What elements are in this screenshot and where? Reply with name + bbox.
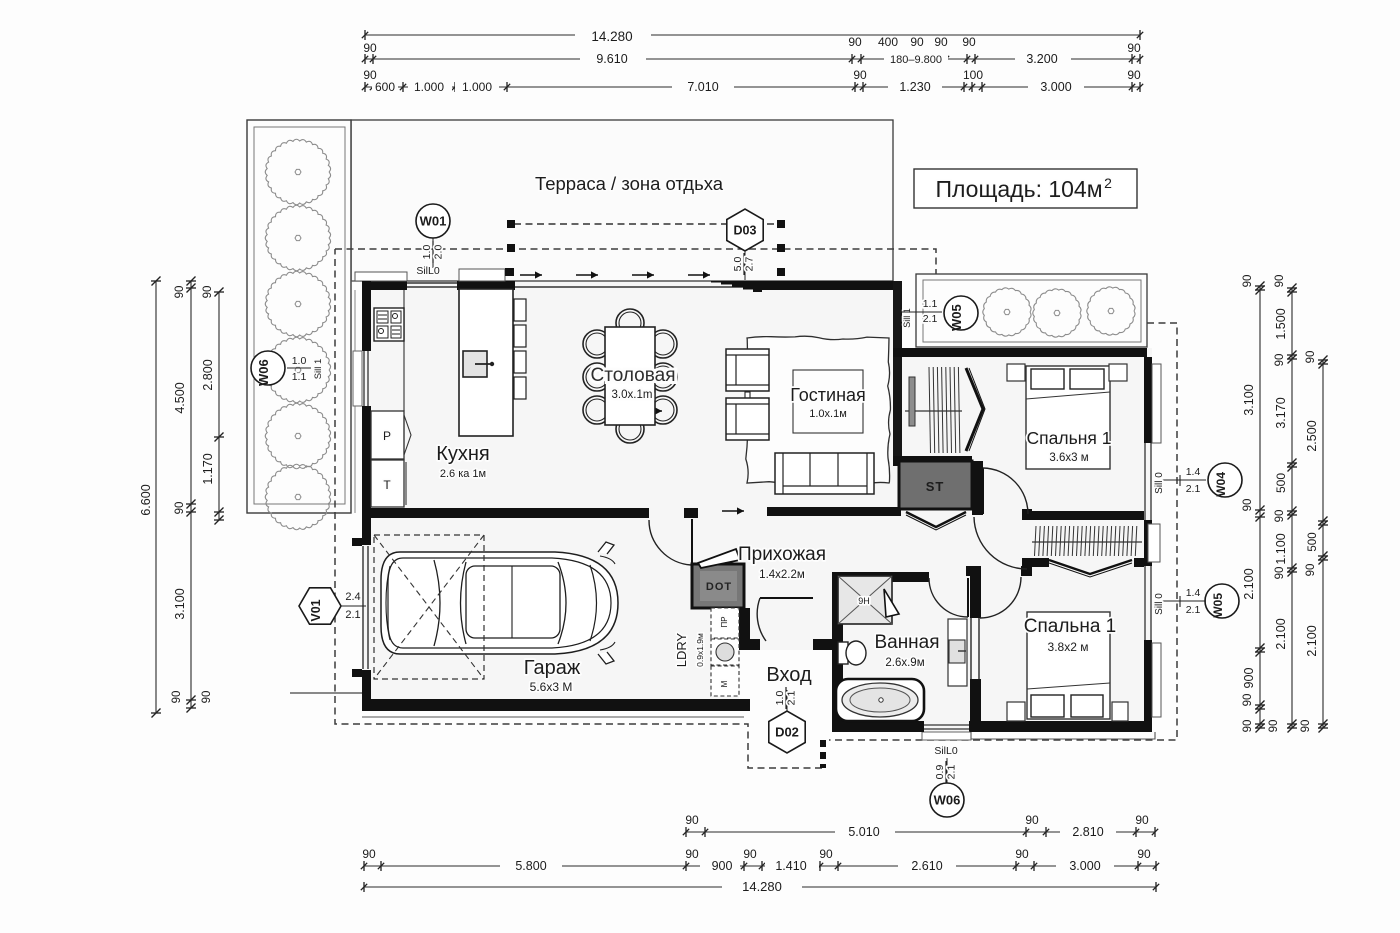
svg-text:Sill 1: Sill 1: [902, 308, 912, 328]
svg-text:1.4: 1.4: [1186, 587, 1201, 599]
svg-text:1.100: 1.100: [1274, 533, 1288, 564]
svg-text:3.100: 3.100: [173, 588, 187, 619]
svg-text:2.7: 2.7: [744, 257, 756, 272]
svg-text:Прихожая: Прихожая: [738, 544, 826, 565]
svg-text:Ванная: Ванная: [874, 632, 939, 653]
svg-text:2.610: 2.610: [911, 859, 942, 873]
svg-text:ПР: ПР: [720, 616, 729, 627]
svg-text:90: 90: [201, 691, 213, 704]
svg-text:900: 900: [712, 859, 733, 873]
svg-text:2.100: 2.100: [1242, 568, 1256, 599]
svg-text:T: T: [383, 478, 391, 492]
svg-text:1.0: 1.0: [774, 691, 786, 706]
svg-text:2.6 ка 1м: 2.6 ка 1м: [440, 468, 486, 480]
svg-text:1.0: 1.0: [292, 355, 307, 367]
svg-text:100: 100: [963, 68, 983, 82]
svg-text:90: 90: [363, 41, 377, 55]
svg-text:5.6х3 М: 5.6х3 М: [530, 680, 573, 694]
svg-text:0.9: 0.9: [934, 765, 946, 780]
svg-text:2: 2: [1104, 175, 1112, 191]
svg-text:7.010: 7.010: [687, 80, 718, 94]
svg-text:Sill 0: Sill 0: [1154, 472, 1165, 494]
svg-text:90: 90: [934, 35, 948, 49]
svg-text:Гостиная: Гостиная: [790, 385, 866, 405]
svg-text:2.1: 2.1: [946, 765, 958, 780]
svg-text:2.1: 2.1: [345, 609, 360, 621]
svg-text:500: 500: [1307, 532, 1319, 551]
svg-text:2.4: 2.4: [345, 591, 360, 603]
svg-text:90: 90: [1015, 847, 1029, 861]
svg-text:3.000: 3.000: [1069, 859, 1100, 873]
svg-text:5.800: 5.800: [515, 859, 546, 873]
svg-text:14.280: 14.280: [591, 29, 632, 44]
svg-text:Терраса / зона отдьха: Терраса / зона отдьха: [535, 173, 724, 194]
svg-text:1.1: 1.1: [923, 298, 938, 310]
svg-text:Sill 0: Sill 0: [1154, 593, 1165, 615]
svg-text:DOT: DOT: [706, 581, 732, 593]
svg-text:90: 90: [1305, 564, 1317, 577]
svg-text:0.9х1.9м: 0.9х1.9м: [695, 633, 705, 667]
svg-text:90: 90: [202, 286, 214, 299]
svg-text:2.100: 2.100: [1305, 625, 1319, 656]
svg-text:3.6х3 м: 3.6х3 м: [1049, 452, 1088, 464]
svg-text:400: 400: [878, 35, 898, 49]
svg-text:90: 90: [1242, 499, 1254, 512]
svg-text:90: 90: [1135, 813, 1149, 827]
svg-text:90: 90: [1274, 510, 1286, 523]
svg-text:ST: ST: [926, 479, 945, 494]
svg-text:9H: 9H: [858, 596, 870, 606]
svg-text:5.0: 5.0: [732, 257, 744, 272]
svg-text:W05: W05: [949, 304, 964, 331]
svg-text:2.100: 2.100: [1274, 618, 1288, 649]
svg-text:90: 90: [171, 691, 183, 704]
svg-text:1.0: 1.0: [421, 245, 433, 260]
svg-text:90: 90: [1127, 68, 1141, 82]
svg-text:D03: D03: [734, 224, 757, 238]
svg-text:3.0х.1m: 3.0х.1m: [612, 389, 653, 401]
svg-text:90: 90: [685, 847, 699, 861]
svg-text:4.500: 4.500: [173, 382, 187, 413]
svg-text:1.000: 1.000: [414, 80, 444, 94]
svg-text:90: 90: [853, 68, 867, 82]
svg-text:90: 90: [910, 35, 924, 49]
svg-text:90: 90: [174, 286, 186, 299]
svg-text:90: 90: [1300, 720, 1312, 733]
svg-text:Площадь: 104м: Площадь: 104м: [935, 176, 1102, 202]
svg-text:3.000: 3.000: [1040, 80, 1071, 94]
svg-text:3.170: 3.170: [1274, 397, 1288, 428]
svg-text:Спальня 1: Спальня 1: [1027, 428, 1112, 448]
svg-text:90: 90: [1242, 720, 1254, 733]
svg-text:3.100: 3.100: [1242, 384, 1256, 415]
svg-text:W01: W01: [420, 214, 447, 229]
svg-text:2.0: 2.0: [433, 245, 445, 260]
svg-text:5.010: 5.010: [848, 825, 879, 839]
svg-text:1.0х.1м: 1.0х.1м: [809, 408, 847, 420]
svg-text:W06: W06: [934, 793, 961, 808]
svg-text:Спальна 1: Спальна 1: [1024, 616, 1116, 637]
svg-text:90: 90: [1274, 354, 1286, 367]
svg-text:2.1: 2.1: [1186, 483, 1201, 495]
svg-text:Гараж: Гараж: [524, 657, 581, 679]
svg-text:900: 900: [1242, 668, 1256, 689]
svg-text:600: 600: [375, 80, 395, 94]
svg-text:Sill 1: Sill 1: [313, 359, 324, 380]
svg-text:180–9.800: 180–9.800: [890, 54, 942, 66]
svg-text:90: 90: [1274, 567, 1286, 580]
svg-text:1.170: 1.170: [201, 453, 215, 484]
svg-text:90: 90: [1305, 351, 1317, 364]
svg-text:2.6х.9м: 2.6х.9м: [885, 657, 924, 669]
svg-text:1.4х2.2м: 1.4х2.2м: [759, 569, 805, 581]
svg-text:90: 90: [848, 35, 862, 49]
svg-text:2.1: 2.1: [1186, 604, 1201, 616]
svg-text:P: P: [383, 429, 391, 443]
svg-text:2.810: 2.810: [1072, 825, 1103, 839]
svg-text:3.8х2 м: 3.8х2 м: [1048, 640, 1089, 654]
svg-text:1.500: 1.500: [1274, 308, 1288, 339]
svg-text:1.1: 1.1: [292, 371, 307, 383]
svg-text:D02: D02: [775, 725, 799, 740]
svg-text:3.200: 3.200: [1026, 52, 1057, 66]
svg-text:SilL0: SilL0: [934, 745, 958, 757]
svg-text:Столовая: Столовая: [591, 365, 676, 386]
svg-text:1.4: 1.4: [1186, 466, 1201, 478]
svg-text:2.800: 2.800: [201, 359, 215, 390]
svg-text:9.610: 9.610: [596, 52, 627, 66]
svg-text:2.500: 2.500: [1305, 420, 1319, 451]
svg-text:1.230: 1.230: [899, 80, 930, 94]
svg-text:90: 90: [362, 847, 376, 861]
svg-text:90: 90: [1242, 275, 1254, 288]
svg-text:2.1: 2.1: [786, 691, 798, 706]
svg-text:90: 90: [685, 813, 699, 827]
svg-text:90: 90: [1274, 275, 1286, 288]
svg-text:LDRY: LDRY: [674, 632, 689, 667]
svg-text:90: 90: [819, 847, 833, 861]
svg-text:90: 90: [1268, 720, 1280, 733]
svg-text:Вход: Вход: [766, 664, 812, 686]
svg-text:90: 90: [174, 502, 186, 515]
svg-text:90: 90: [1242, 694, 1254, 707]
svg-text:90: 90: [1137, 847, 1151, 861]
svg-text:14.280: 14.280: [742, 879, 782, 894]
svg-text:1.000: 1.000: [462, 80, 492, 94]
svg-text:SilL0: SilL0: [416, 265, 440, 277]
svg-text:90: 90: [1127, 41, 1141, 55]
svg-text:W05: W05: [1211, 593, 1225, 618]
svg-text:90: 90: [1025, 813, 1039, 827]
svg-text:1.410: 1.410: [775, 859, 806, 873]
svg-text:90: 90: [962, 35, 976, 49]
svg-text:500: 500: [1274, 473, 1288, 493]
svg-text:2.1: 2.1: [923, 313, 938, 325]
svg-text:Кухня: Кухня: [436, 443, 490, 465]
svg-text:М: М: [720, 680, 729, 687]
svg-text:6.600: 6.600: [139, 484, 153, 515]
svg-text:90: 90: [743, 847, 757, 861]
svg-text:V01: V01: [309, 599, 323, 621]
svg-text:W06: W06: [256, 359, 271, 386]
svg-text:W04: W04: [1214, 472, 1228, 497]
